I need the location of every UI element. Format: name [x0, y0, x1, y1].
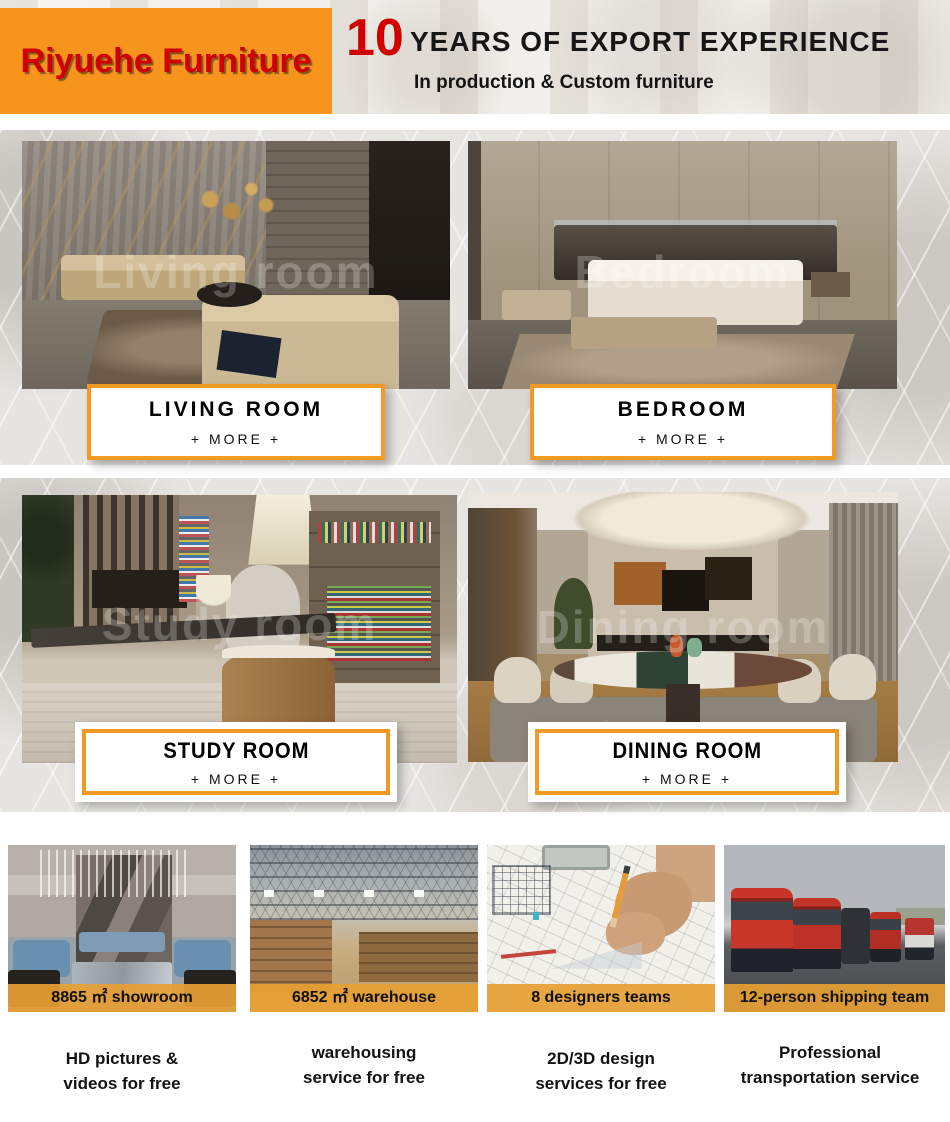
showroom-sofa-back — [79, 932, 166, 952]
truck-2 — [793, 898, 842, 968]
brand-name: Riyuehe Furniture — [21, 42, 312, 81]
dining-room-label: DINING ROOM — [612, 738, 762, 764]
service-line: service for free — [250, 1065, 478, 1090]
study-floor-lamp — [248, 495, 318, 565]
service-line: warehousing — [250, 1040, 478, 1065]
page: Riyuehe Furniture 10 YEARS OF EXPORT EXP… — [0, 0, 950, 1122]
warehouse-roof-truss — [250, 845, 478, 920]
shipping-team-image: 12-person shipping team — [724, 845, 945, 1012]
bedroom-ottoman — [502, 290, 571, 320]
header-years-number: 10 — [346, 12, 404, 64]
truck-3-dark — [841, 908, 870, 963]
living-pendant-lights — [193, 146, 279, 220]
living-room-label: LIVING ROOM — [149, 398, 323, 422]
study-books-top — [318, 522, 431, 543]
service-line: transportation service — [710, 1065, 950, 1090]
bedroom-bed — [588, 260, 803, 324]
design-red-pen — [501, 949, 556, 959]
living-room-more-button: + MORE + — [191, 431, 281, 447]
dining-art-brown — [705, 557, 752, 600]
study-cabinet-dark — [92, 570, 188, 608]
shipping-team-caption: 12-person shipping team — [724, 984, 945, 1012]
study-room-more-button: + MORE + — [191, 771, 281, 787]
dining-art-orange — [614, 562, 666, 605]
dining-chair-left1 — [494, 657, 541, 703]
showroom-chandelier — [40, 850, 190, 897]
study-books-stack — [327, 586, 431, 661]
header-title: YEARS OF EXPORT EXPERIENCE — [410, 26, 890, 58]
service-label-showroom: HD pictures & videos for free — [8, 1040, 236, 1096]
warehouse-lights — [264, 890, 465, 897]
service-label-design: 2D/3D design services for free — [487, 1040, 715, 1096]
bedroom-label: BEDROOM — [618, 398, 749, 422]
truck-5 — [905, 918, 934, 960]
brand-logo-block: Riyuehe Furniture — [0, 8, 332, 114]
dining-plant — [554, 578, 593, 648]
dining-room-more-button: + MORE + — [642, 771, 732, 787]
design-team-caption: 8 designers teams — [487, 984, 715, 1012]
living-coffee-table — [197, 282, 261, 307]
study-slat-divider — [83, 495, 179, 634]
study-chair — [226, 565, 300, 656]
dining-room-card-frame: DINING ROOM + MORE + — [535, 729, 839, 795]
living-wall-panel — [266, 141, 369, 320]
living-room-card[interactable]: LIVING ROOM + MORE + — [87, 384, 385, 460]
dining-sideboard — [597, 635, 769, 651]
service-label-warehouse: warehousing service for free — [250, 1040, 478, 1090]
study-room-card[interactable]: STUDY ROOM + MORE + — [75, 722, 397, 802]
dining-room-card[interactable]: DINING ROOM + MORE + — [528, 722, 846, 802]
dining-vase-green — [687, 638, 702, 657]
dining-vase-orange — [670, 635, 683, 657]
service-line: HD pictures & — [8, 1046, 236, 1071]
service-line: 2D/3D design — [487, 1046, 715, 1071]
dining-table-base — [666, 684, 700, 725]
warehouse-boxes-left — [250, 920, 332, 992]
study-room-label: STUDY ROOM — [163, 738, 309, 764]
design-tablet — [542, 845, 610, 870]
warehouse-boxes-right — [359, 932, 478, 982]
truck-1 — [731, 888, 793, 972]
service-line: videos for free — [8, 1071, 236, 1096]
warehouse-image: 6852 ㎡ warehouse — [250, 845, 478, 1012]
bedroom-nightstand — [811, 272, 850, 297]
living-room-photo[interactable]: Living room — [22, 141, 450, 389]
study-cabinet-top — [222, 645, 335, 658]
design-ruler — [551, 942, 642, 969]
bedroom-more-button: + MORE + — [638, 431, 728, 447]
dining-chandelier — [571, 492, 812, 551]
truck-4 — [870, 912, 901, 962]
study-plants — [22, 495, 74, 642]
bedroom-bench — [571, 317, 717, 349]
design-blueprint — [492, 865, 551, 915]
service-label-shipping: Professional transportation service — [710, 1040, 950, 1090]
dining-chair-right2 — [829, 654, 876, 700]
showroom-caption: 8865 ㎡ showroom — [8, 984, 236, 1012]
bedroom-card[interactable]: BEDROOM + MORE + — [530, 384, 836, 460]
header-subtitle: In production & Custom furniture — [414, 72, 714, 94]
bedroom-photo[interactable]: Bedroom — [468, 141, 897, 389]
warehouse-caption: 6852 ㎡ warehouse — [250, 984, 478, 1012]
service-line: Professional — [710, 1040, 950, 1065]
design-team-image: 8 designers teams — [487, 845, 715, 1012]
dining-art-black — [662, 570, 709, 611]
design-marker — [533, 912, 540, 920]
showroom-image: 8865 ㎡ showroom — [8, 845, 236, 1012]
service-line: services for free — [487, 1071, 715, 1096]
study-room-card-frame: STUDY ROOM + MORE + — [82, 729, 390, 795]
